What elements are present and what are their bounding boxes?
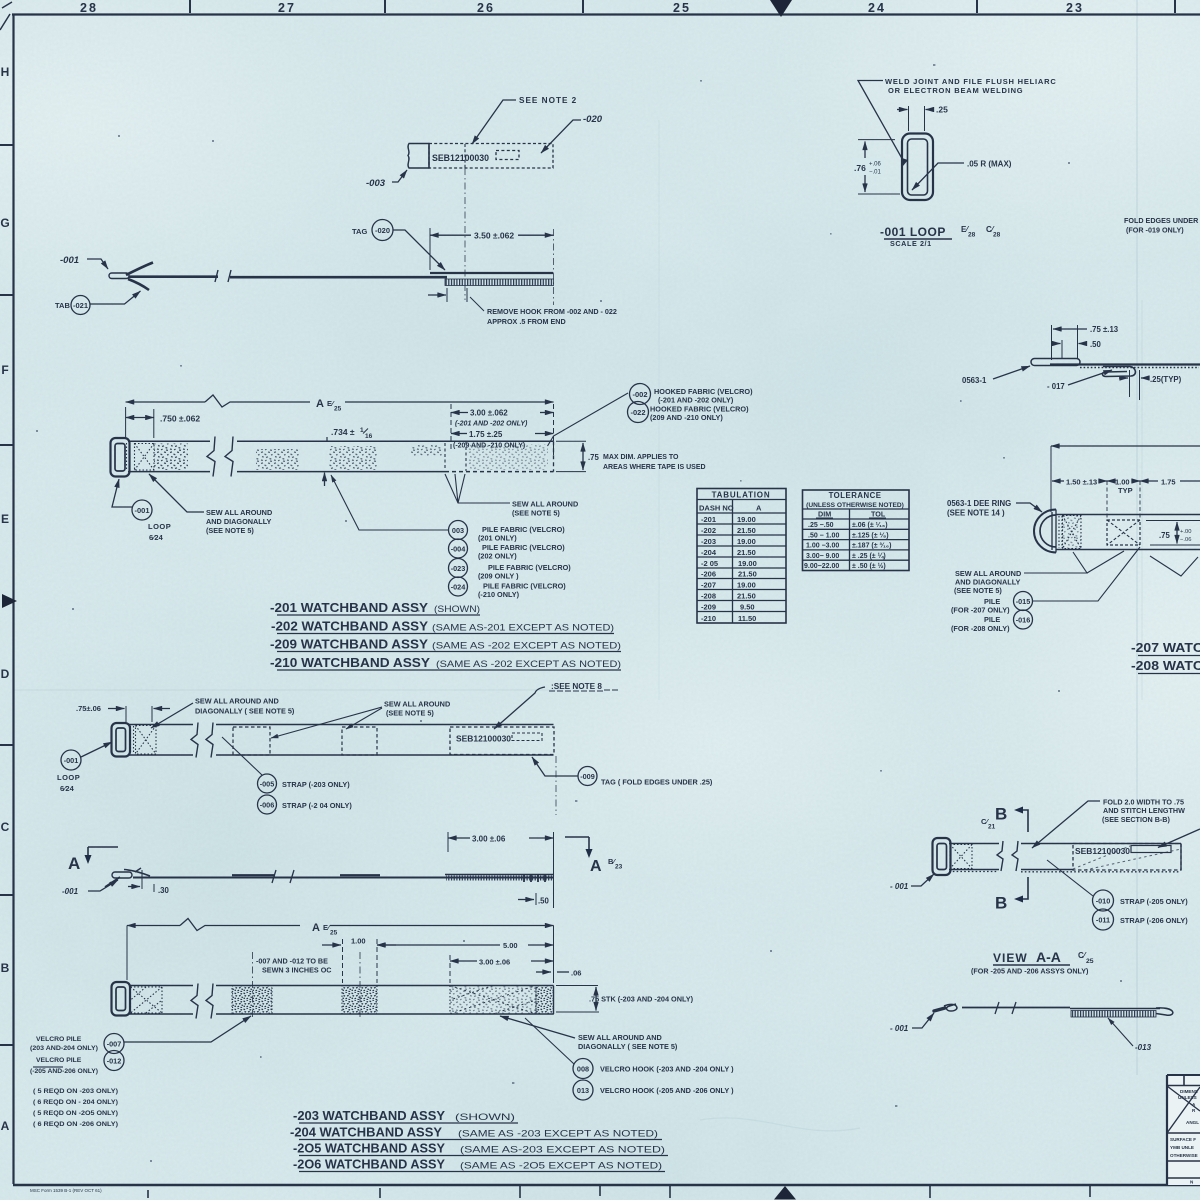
- svg-text:.05 R (MAX): .05 R (MAX): [967, 160, 1012, 169]
- svg-text:SEB12100030: SEB12100030: [456, 734, 511, 744]
- svg-text:SEB12100030: SEB12100030: [432, 153, 489, 163]
- svg-text:19.00: 19.00: [738, 559, 757, 568]
- svg-text:28: 28: [80, 1, 98, 15]
- svg-text:003: 003: [452, 526, 464, 535]
- svg-text:DIAGONALLY ( SEE NOTE 5): DIAGONALLY ( SEE NOTE 5): [195, 707, 295, 716]
- svg-text:-005: -005: [260, 780, 275, 789]
- svg-text:-210 WATCHBAND ASSY: -210 WATCHBAND ASSY: [270, 656, 431, 670]
- svg-text:008: 008: [577, 1065, 589, 1074]
- svg-text:A: A: [316, 398, 324, 410]
- svg-text:3.00 ±.06: 3.00 ±.06: [472, 835, 506, 844]
- svg-text:−.06: −.06: [1180, 537, 1191, 543]
- svg-text:-020: -020: [583, 114, 603, 125]
- svg-text:.750 ±.062: .750 ±.062: [160, 414, 200, 424]
- svg-text:STRAP (-2 04 ONLY): STRAP (-2 04 ONLY): [282, 801, 352, 810]
- svg-text:11.50: 11.50: [738, 614, 756, 623]
- svg-text:TABULATION: TABULATION: [712, 491, 771, 500]
- svg-text:16: 16: [365, 433, 373, 440]
- svg-text:21: 21: [988, 824, 996, 831]
- svg-text:23: 23: [615, 864, 623, 871]
- svg-text:SURFACE F: SURFACE F: [1170, 1137, 1196, 1142]
- svg-text:-001 LOOP: -001 LOOP: [880, 225, 946, 239]
- svg-text:25: 25: [1086, 958, 1094, 965]
- svg-text:AND STITCH LENGTHW: AND STITCH LENGTHW: [1103, 806, 1185, 815]
- svg-text:-204 WATCHBAND ASSY: -204 WATCHBAND ASSY: [290, 1126, 443, 1140]
- svg-text:APPROX .5 FROM END: APPROX .5 FROM END: [487, 317, 566, 326]
- svg-text:(SEE NOTE 5): (SEE NOTE 5): [512, 509, 560, 518]
- svg-text:3.00− 9.00: 3.00− 9.00: [806, 553, 839, 560]
- svg-text:-007: -007: [107, 1040, 122, 1049]
- svg-text:A: A: [756, 504, 762, 513]
- svg-text:19.00: 19.00: [737, 581, 756, 590]
- svg-text:25: 25: [330, 930, 338, 937]
- svg-text:.25: .25: [936, 105, 948, 115]
- svg-text:SEW ALL AROUND AND: SEW ALL AROUND AND: [195, 697, 279, 706]
- svg-text:(SAME AS-201 EXCEPT AS NOTED): (SAME AS-201 EXCEPT AS NOTED): [432, 623, 614, 634]
- svg-text:SEWN 3 INCHES OC: SEWN 3 INCHES OC: [262, 966, 332, 975]
- svg-text:A: A: [68, 854, 80, 873]
- svg-text:-002: -002: [632, 390, 647, 399]
- svg-text:SEW ALL AROUND AND: SEW ALL AROUND AND: [578, 1033, 662, 1042]
- svg-text:PILE: PILE: [984, 615, 1000, 624]
- svg-text:21.50: 21.50: [738, 570, 757, 579]
- svg-text:A: A: [1, 1119, 12, 1133]
- svg-text:9.00−22.00: 9.00−22.00: [804, 563, 839, 570]
- svg-text:(SAME AS-203 EXCEPT AS NOT: (SAME AS-203 EXCEPT AS NOTED): [460, 1145, 665, 1156]
- svg-text:-024: -024: [451, 583, 467, 592]
- svg-text:27: 27: [278, 1, 296, 15]
- svg-text:-001: -001: [60, 255, 79, 266]
- svg-text:-2O6 WATCHBAND ASSY: -2O6 WATCHBAND ASSY: [293, 1158, 446, 1172]
- svg-text:1.75: 1.75: [1161, 478, 1176, 487]
- svg-text:DASH NO: DASH NO: [699, 504, 734, 513]
- svg-text:(SAME AS -202 EXCEPT AS NOTED): (SAME AS -202 EXCEPT AS NOTED): [436, 659, 621, 670]
- svg-text:(FOR -207 ONLY): (FOR -207 ONLY): [951, 606, 1010, 615]
- svg-text:-003: -003: [366, 178, 386, 189]
- svg-text:VELCRO HOOK (-205 AND -206: VELCRO HOOK (-205 AND -206 ONLY ): [600, 1086, 734, 1095]
- svg-text:DIAGONALLY ( SEE NOTE 5): DIAGONALLY ( SEE NOTE 5): [578, 1042, 678, 1051]
- svg-text:STRAP (-205 ONLY): STRAP (-205 ONLY): [1120, 897, 1188, 906]
- svg-text:-022: -022: [630, 408, 645, 417]
- svg-text:VELCRO PILE: VELCRO PILE: [36, 1036, 82, 1043]
- svg-text:-209: -209: [701, 603, 716, 612]
- svg-text:( 6 REQD ON - 204 ONLY): ( 6 REQD ON - 204 ONLY): [33, 1099, 118, 1106]
- svg-text:AREAS WHERE TAPE IS USED: AREAS WHERE TAPE IS USED: [603, 464, 706, 471]
- svg-text:(FOR -208 ONLY): (FOR -208 ONLY): [951, 624, 1010, 633]
- svg-text:F: F: [1, 363, 10, 377]
- svg-text:-209 WATCHBAND ASSY: -209 WATCHBAND ASSY: [270, 638, 429, 652]
- svg-text:(-205 AND-206 ONLY): (-205 AND-206 ONLY): [30, 1068, 98, 1075]
- svg-text:.75 ±.13: .75 ±.13: [1090, 325, 1119, 334]
- svg-text:-207: -207: [701, 581, 716, 590]
- svg-text:-020: -020: [375, 226, 390, 235]
- svg-text:VELCRO HOOK (-203 AND -204: VELCRO HOOK (-203 AND -204 ONLY ): [600, 1065, 734, 1074]
- svg-text:(SEE NOTE 14 ): (SEE NOTE 14 ): [947, 509, 1005, 518]
- svg-text:(FOR -205 AND -206 ASSYS ONL: (FOR -205 AND -206 ASSYS ONLY): [971, 967, 1089, 976]
- svg-text:(209 AND -210 ONLY): (209 AND -210 ONLY): [650, 413, 723, 422]
- svg-text:1.50 ±.13: 1.50 ±.13: [1066, 478, 1097, 487]
- svg-text:OTHERWISE: OTHERWISE: [1170, 1153, 1198, 1158]
- svg-text:-2 05: -2 05: [701, 559, 718, 568]
- svg-text:-012: -012: [107, 1057, 122, 1066]
- svg-text:25: 25: [334, 406, 342, 413]
- svg-text:SEB12100030: SEB12100030: [1075, 846, 1130, 856]
- svg-text:26: 26: [477, 1, 495, 15]
- svg-text:.50 − 1.00: .50 − 1.00: [808, 532, 839, 539]
- svg-text:DIMENS: DIMENS: [1180, 1089, 1198, 1094]
- svg-text:(SAME AS -203 EXCEPT AS NOT: (SAME AS -203 EXCEPT AS NOTED): [458, 1129, 658, 1140]
- svg-text:B: B: [995, 894, 1007, 913]
- svg-text:(SHOWN): (SHOWN): [434, 604, 480, 615]
- svg-text:19.00: 19.00: [737, 515, 756, 524]
- svg-text:3.00 ±.062: 3.00 ±.062: [470, 409, 508, 418]
- svg-text:(SHOWN): (SHOWN): [455, 1112, 515, 1123]
- svg-text:19.00: 19.00: [737, 537, 756, 546]
- svg-text:(SAME AS -202 EXCEPT AS NOTE: (SAME AS -202 EXCEPT AS NOTED): [432, 641, 621, 652]
- svg-text:E: E: [1, 512, 11, 526]
- svg-text:( 5 REQD ON -2O5 ONLY): ( 5 REQD ON -2O5 ONLY): [33, 1110, 118, 1117]
- svg-text:6⁄24: 6⁄24: [60, 784, 75, 793]
- svg-text:-208: -208: [701, 592, 716, 601]
- svg-text:(SEE NOTE 5): (SEE NOTE 5): [386, 709, 434, 718]
- svg-text:(SEE SECTION B-B): (SEE SECTION B-B): [1102, 815, 1170, 824]
- svg-text:9.50: 9.50: [740, 603, 755, 612]
- svg-text:TAG: TAG: [352, 227, 367, 236]
- svg-text:(209 ONLY ): (209 ONLY ): [478, 572, 519, 581]
- svg-text:B: B: [1, 961, 12, 975]
- svg-text:.25 −.50: .25 −.50: [808, 522, 834, 529]
- svg-text:YMB UNLE: YMB UNLE: [1170, 1145, 1194, 1150]
- svg-text:23: 23: [1066, 1, 1084, 15]
- svg-text:-009: -009: [580, 772, 595, 781]
- svg-text:(-201 AND -202 ONLY): (-201 AND -202 ONLY): [455, 421, 528, 428]
- svg-text:(UNLESS OTHERWISE NOTED): (UNLESS OTHERWISE NOTED): [806, 502, 904, 509]
- svg-text:TOLERANCE: TOLERANCE: [829, 491, 882, 500]
- svg-text:1.75 ±.25: 1.75 ±.25: [469, 430, 503, 439]
- svg-text:-202: -202: [701, 526, 716, 535]
- svg-text:-006: -006: [260, 801, 275, 810]
- svg-text:D: D: [1, 667, 12, 681]
- svg-text:VELCRO PILE: VELCRO PILE: [36, 1057, 82, 1064]
- svg-text:(SAME AS -2O5 EXCEPT AS NO: (SAME AS -2O5 EXCEPT AS NOTED): [460, 1161, 662, 1172]
- svg-text:-007 AND -012 TO BE: -007 AND -012 TO BE: [256, 957, 328, 966]
- svg-text:-207 WATC: -207 WATC: [1131, 640, 1200, 655]
- svg-text:25: 25: [673, 1, 691, 15]
- svg-text:-208 WATC: -208 WATC: [1131, 658, 1200, 673]
- svg-text:AND DIAGONALLY: AND DIAGONALLY: [206, 517, 272, 526]
- svg-text:(FOR -019 ONLY): (FOR -019 ONLY): [1126, 226, 1184, 235]
- svg-text::SEE NOTE 8: :SEE NOTE 8: [551, 682, 602, 691]
- svg-text:OR ELECTRON BEAM WELDING: OR ELECTRON BEAM WELDING: [888, 86, 1023, 95]
- svg-text:H: H: [1, 65, 12, 79]
- svg-text:1.00: 1.00: [351, 937, 366, 946]
- svg-text:-202 WATCHBAND ASSY: -202 WATCHBAND ASSY: [271, 620, 429, 634]
- svg-text:.76: .76: [854, 163, 866, 173]
- svg-text:0563-1: 0563-1: [962, 376, 987, 385]
- svg-text:21.50: 21.50: [737, 526, 756, 535]
- svg-text:+.06: +.06: [869, 162, 882, 168]
- svg-text:-010: -010: [1096, 897, 1111, 906]
- svg-text:MSC Form 1539 B-1 (REV OCT 61): MSC Form 1539 B-1 (REV OCT 61): [30, 1188, 102, 1193]
- svg-text:-001: -001: [62, 887, 79, 896]
- svg-text:DIM: DIM: [818, 510, 831, 519]
- svg-text:LOOP: LOOP: [57, 773, 80, 782]
- svg-text:.30: .30: [158, 886, 170, 895]
- svg-text:-021: -021: [73, 301, 88, 310]
- svg-text:.734 ±: .734 ±: [331, 427, 355, 437]
- svg-text:( 6 REQD ON -206 ONLY): ( 6 REQD ON -206 ONLY): [33, 1121, 118, 1128]
- svg-text:A: A: [312, 922, 320, 934]
- svg-text:TAG ( FOLD EDGES UNDER .25: TAG ( FOLD EDGES UNDER .25): [601, 778, 713, 787]
- svg-text:SCALE 2/1: SCALE 2/1: [890, 239, 932, 248]
- svg-text:- 017: - 017: [1047, 382, 1065, 391]
- svg-text:-023: -023: [451, 564, 466, 573]
- svg-text:TYP: TYP: [1118, 486, 1133, 495]
- svg-text:(203 AND-204 ONLY): (203 AND-204 ONLY): [30, 1045, 98, 1052]
- svg-text:1.00 −3.00: 1.00 −3.00: [806, 543, 839, 550]
- svg-text:UNLESS: UNLESS: [1178, 1095, 1197, 1100]
- svg-text:.25(TYP): .25(TYP): [1150, 375, 1182, 384]
- svg-text:.75 STK (-203 AND -204 ONLY): .75 STK (-203 AND -204 ONLY): [589, 995, 694, 1004]
- svg-text:(SEE NOTE 5): (SEE NOTE 5): [954, 586, 1002, 595]
- svg-text:-204: -204: [701, 548, 717, 557]
- svg-text:- 001: - 001: [890, 882, 909, 891]
- svg-text:28: 28: [993, 232, 1001, 239]
- svg-text:-206: -206: [701, 570, 716, 579]
- svg-text:.75±.06: .75±.06: [76, 704, 101, 713]
- svg-text:ANGL: ANGL: [1186, 1120, 1199, 1125]
- svg-text:TAB: TAB: [55, 301, 70, 310]
- svg-text:(-201 AND -202 ONLY): (-201 AND -202 ONLY): [658, 396, 734, 405]
- svg-text:.06: .06: [571, 969, 581, 978]
- svg-text:0563-1 DEE RING: 0563-1 DEE RING: [947, 499, 1011, 508]
- svg-text:VIEW: VIEW: [993, 951, 1028, 965]
- svg-text:21.50: 21.50: [737, 548, 756, 557]
- svg-text:A-A: A-A: [1036, 949, 1061, 965]
- svg-text:C: C: [1, 820, 12, 834]
- svg-text:(201 ONLY): (201 ONLY): [478, 534, 517, 543]
- svg-text:5.00: 5.00: [503, 941, 518, 950]
- svg-text:-011: -011: [1096, 916, 1110, 925]
- svg-text:.50: .50: [538, 897, 550, 906]
- svg-text:-004: -004: [451, 545, 467, 554]
- svg-text:STRAP (-206 ONLY): STRAP (-206 ONLY): [1120, 916, 1188, 925]
- svg-text:(202 ONLY): (202 ONLY): [478, 552, 517, 561]
- svg-text:+.00: +.00: [1180, 529, 1191, 535]
- svg-text:-001: -001: [64, 756, 79, 765]
- svg-text:-203 WATCHBAND ASSY: -203 WATCHBAND ASSY: [293, 1109, 446, 1123]
- svg-text:( 5 REQD ON -203 ONLY): ( 5 REQD ON -203 ONLY): [33, 1088, 118, 1095]
- svg-text:.50: .50: [1090, 340, 1102, 349]
- svg-text:- 001: - 001: [890, 1024, 909, 1033]
- svg-text:FOLD EDGES UNDER: FOLD EDGES UNDER: [1124, 216, 1199, 225]
- svg-text:±.187 (± ³⁄₁₆): ±.187 (± ³⁄₁₆): [852, 543, 891, 550]
- svg-text:.75: .75: [1159, 531, 1171, 540]
- svg-text:-210: -210: [701, 614, 716, 623]
- svg-text:REMOVE HOOK FROM -002 AND: REMOVE HOOK FROM -002 AND - 022: [487, 307, 617, 316]
- svg-text:013: 013: [577, 1086, 589, 1095]
- svg-text:SEW ALL AROUND: SEW ALL AROUND: [512, 500, 578, 509]
- svg-text:MAX DIM. APPLIES TO: MAX DIM. APPLIES TO: [603, 454, 679, 461]
- svg-text:24: 24: [868, 1, 886, 15]
- svg-text:(SEE NOTE 5): (SEE NOTE 5): [206, 526, 254, 535]
- svg-text:± .25 (± ¼): ± .25 (± ¼): [852, 552, 886, 560]
- svg-text:± .50 (± ½): ± .50 (± ½): [852, 562, 886, 570]
- svg-text:A: A: [590, 858, 602, 875]
- svg-text:SEW ALL AROUND: SEW ALL AROUND: [206, 508, 272, 517]
- svg-text:TOL: TOL: [871, 510, 886, 519]
- svg-text:LOOP: LOOP: [148, 522, 171, 531]
- svg-text:STRAP (-203 ONLY): STRAP (-203 ONLY): [282, 780, 350, 789]
- svg-text:G: G: [0, 216, 11, 230]
- svg-text:(-210 ONLY): (-210 ONLY): [478, 590, 520, 599]
- svg-text:±.06 (± ¹⁄₁₆): ±.06 (± ¹⁄₁₆): [852, 522, 888, 529]
- svg-text:−.01: −.01: [869, 170, 882, 176]
- svg-text:B: B: [995, 805, 1007, 824]
- svg-text:-013: -013: [1135, 1043, 1152, 1052]
- svg-text:-016: -016: [1016, 616, 1031, 625]
- svg-text:6⁄24: 6⁄24: [149, 533, 164, 542]
- svg-text:±.125 (± ¹⁄₈): ±.125 (± ¹⁄₈): [852, 532, 889, 539]
- svg-text:28: 28: [968, 232, 976, 239]
- svg-text:3.50 ±.062: 3.50 ±.062: [474, 231, 514, 241]
- svg-text:.75: .75: [588, 453, 600, 462]
- svg-text:-203: -203: [701, 537, 716, 546]
- svg-text:-2O5 WATCHBAND ASSY: -2O5 WATCHBAND ASSY: [293, 1142, 446, 1156]
- svg-text:-001: -001: [134, 506, 149, 515]
- svg-text:SEE NOTE 2: SEE NOTE 2: [519, 96, 577, 105]
- svg-text:-201: -201: [701, 515, 716, 524]
- svg-text:21.50: 21.50: [737, 592, 756, 601]
- svg-text:-201 WATCHBAND ASSY: -201 WATCHBAND ASSY: [270, 601, 429, 615]
- svg-text:3.00 ±.06: 3.00 ±.06: [479, 958, 510, 967]
- svg-text:WELD JOINT AND FILE FLUSH HELI: WELD JOINT AND FILE FLUSH HELIARC: [885, 77, 1057, 86]
- svg-text:-015: -015: [1016, 597, 1031, 606]
- svg-text:SEW ALL AROUND: SEW ALL AROUND: [384, 700, 450, 709]
